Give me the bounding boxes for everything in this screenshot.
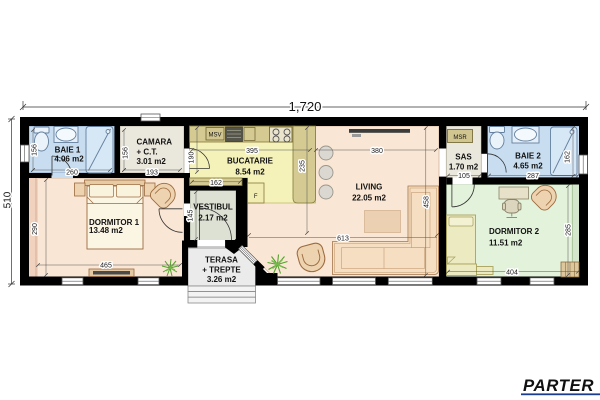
svg-text:193: 193 [146, 170, 158, 177]
svg-text:+ TREPTE: + TREPTE [202, 266, 241, 275]
svg-text:4.65 m2: 4.65 m2 [513, 162, 543, 171]
svg-text:+ C.T.: + C.T. [137, 148, 158, 157]
svg-text:4.06 m2: 4.06 m2 [54, 155, 84, 164]
svg-text:BAIE 1: BAIE 1 [55, 146, 81, 155]
svg-text:162: 162 [210, 180, 222, 187]
svg-text:1,720: 1,720 [288, 99, 321, 114]
svg-text:3.01 m2: 3.01 m2 [137, 157, 167, 166]
svg-text:VESTIBUL: VESTIBUL [193, 203, 233, 212]
svg-text:F: F [254, 194, 258, 200]
svg-text:260: 260 [66, 170, 78, 177]
svg-text:190: 190 [189, 152, 196, 164]
svg-text:156: 156 [32, 144, 39, 156]
svg-text:162: 162 [565, 151, 572, 163]
svg-text:145: 145 [188, 210, 195, 222]
svg-text:LIVING: LIVING [356, 183, 383, 192]
svg-text:290: 290 [32, 223, 39, 235]
svg-text:13.48 m2: 13.48 m2 [89, 226, 123, 235]
svg-text:1.70 m2: 1.70 m2 [449, 163, 479, 172]
svg-text:285: 285 [566, 224, 573, 236]
svg-text:510: 510 [3, 191, 14, 208]
svg-text:458: 458 [423, 196, 430, 208]
svg-text:TERASA: TERASA [205, 256, 238, 265]
svg-text:287: 287 [527, 173, 539, 180]
svg-text:613: 613 [337, 235, 349, 242]
svg-text:235: 235 [300, 160, 307, 172]
svg-text:3.26 m2: 3.26 m2 [207, 275, 237, 284]
svg-text:11.51 m2: 11.51 m2 [489, 239, 523, 248]
svg-text:2.17 m2: 2.17 m2 [198, 214, 228, 223]
svg-text:BUCATARIE: BUCATARIE [227, 157, 274, 166]
svg-text:DORMITOR 2: DORMITOR 2 [489, 227, 540, 236]
svg-text:156: 156 [123, 147, 130, 159]
svg-text:465: 465 [100, 263, 112, 270]
svg-text:404: 404 [506, 270, 518, 277]
svg-text:395: 395 [246, 148, 258, 155]
svg-text:105: 105 [458, 173, 470, 180]
svg-text:380: 380 [371, 148, 383, 155]
svg-text:MSV: MSV [208, 133, 221, 139]
svg-text:MSR: MSR [453, 135, 467, 141]
svg-text:BAIE 2: BAIE 2 [515, 152, 541, 161]
svg-text:8.54 m2: 8.54 m2 [235, 168, 265, 177]
svg-text:SAS: SAS [455, 153, 472, 162]
svg-text:PARTER: PARTER [523, 376, 594, 395]
svg-text:CAMARA: CAMARA [137, 138, 173, 147]
svg-text:22.05 m2: 22.05 m2 [352, 194, 386, 203]
